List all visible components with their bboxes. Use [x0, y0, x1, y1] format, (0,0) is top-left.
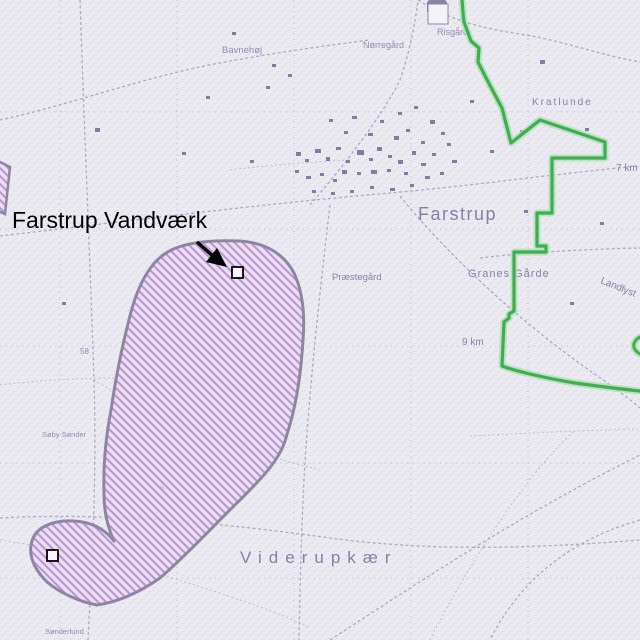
praestegaard-label: Præstegård: [332, 272, 382, 283]
km9-label: 9 km: [462, 337, 484, 348]
soby-sonder-label: Søby Sønder: [42, 430, 87, 439]
granes-gaarde-label: Granes Gårde: [468, 268, 550, 280]
sonderlund-label: Sønderlund: [45, 627, 84, 636]
bavnehoj-label: Bavnehøj: [222, 45, 262, 56]
map-viewport[interactable]: Farstrup Viderupkær Granes Gårde Præsteg…: [0, 0, 640, 640]
kratlunde-label: Kratlunde: [532, 97, 593, 108]
elevation-label: 58: [80, 347, 89, 356]
town-label: Farstrup: [418, 204, 497, 224]
waterworks-overlay-label: Farstrup Vandværk: [12, 207, 208, 233]
norregaard-label: Nørregård: [363, 40, 404, 50]
village-label: Viderupkær: [240, 548, 398, 567]
farm-outline: [428, 4, 448, 24]
km7-label: 7 km: [616, 163, 638, 174]
well-marker-south[interactable]: [47, 550, 58, 561]
well-marker-north[interactable]: [232, 267, 243, 278]
map-canvas[interactable]: Farstrup Viderupkær Granes Gårde Præsteg…: [0, 0, 640, 640]
